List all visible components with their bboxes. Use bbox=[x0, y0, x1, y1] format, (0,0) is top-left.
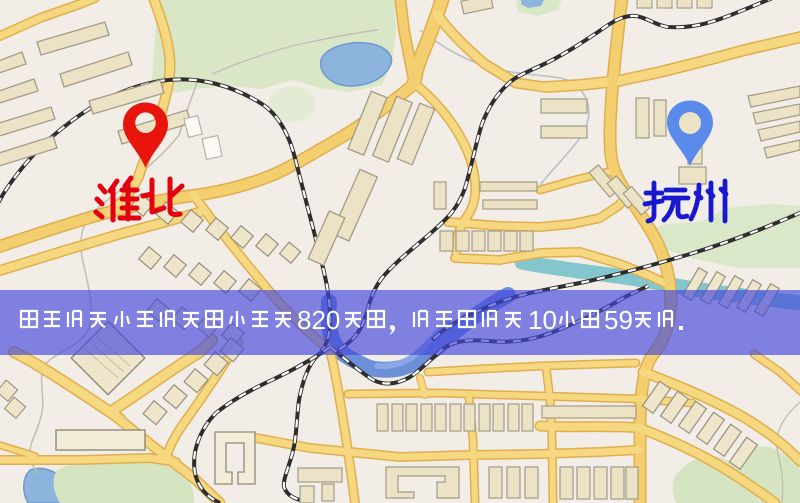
svg-text:820: 820 bbox=[297, 305, 340, 335]
svg-text:59: 59 bbox=[604, 305, 633, 335]
svg-text:10: 10 bbox=[528, 305, 557, 335]
